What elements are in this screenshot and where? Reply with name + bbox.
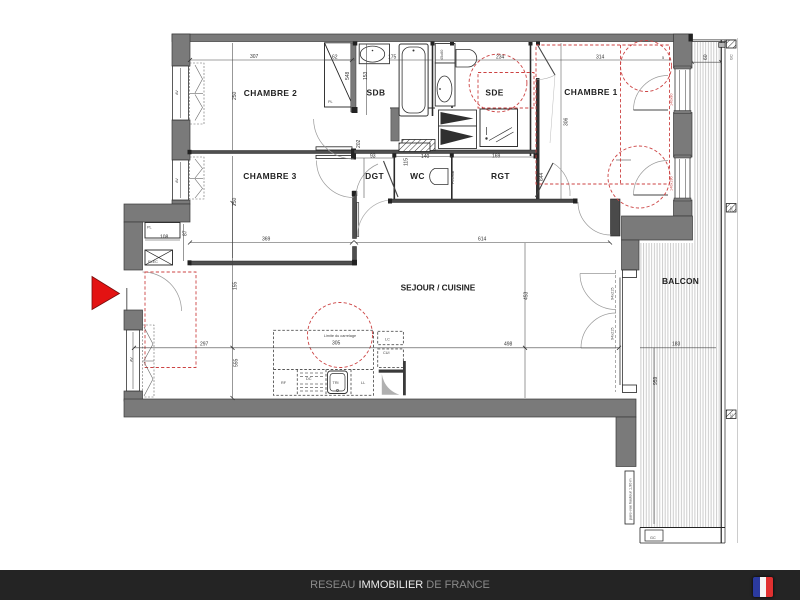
svg-text:LL: LL [361, 381, 365, 385]
svg-text:TRI: TRI [333, 381, 339, 385]
svg-text:CHAMBRE 3: CHAMBRE 3 [243, 171, 296, 181]
svg-text:555: 555 [234, 358, 240, 367]
svg-text:297: 297 [200, 342, 209, 348]
svg-text:45x60: 45x60 [440, 50, 444, 60]
svg-text:108: 108 [160, 235, 169, 241]
svg-text:PL: PL [147, 226, 152, 230]
svg-text:94x215: 94x215 [611, 288, 615, 300]
svg-text:306: 306 [564, 117, 570, 126]
svg-text:CHAMBRE 2: CHAMBRE 2 [244, 88, 297, 98]
svg-text:DC: DC [306, 377, 312, 381]
svg-text:498: 498 [504, 342, 513, 348]
svg-text:RGT: RGT [491, 171, 510, 181]
svg-text:ELEC: ELEC [148, 260, 158, 264]
svg-text:60: 60 [703, 54, 709, 60]
svg-text:140x90: 140x90 [670, 94, 674, 106]
svg-text:153: 153 [363, 71, 369, 80]
svg-text:Limite du carrelage: Limite du carrelage [324, 334, 356, 338]
svg-text:93: 93 [370, 154, 376, 160]
svg-text:BALCON: BALCON [662, 276, 699, 286]
svg-text:PL: PL [328, 100, 333, 104]
svg-text:94x215: 94x215 [611, 328, 615, 340]
svg-text:LC: LC [385, 338, 390, 342]
svg-text:GC: GC [730, 413, 734, 419]
svg-text:959: 959 [653, 376, 659, 385]
svg-text:453: 453 [524, 291, 530, 300]
svg-text:PLOMB: PLOMB [451, 170, 455, 184]
svg-text:5: 5 [662, 56, 664, 60]
svg-text:115: 115 [404, 158, 410, 166]
svg-text:pare-vue hauteur 1,90 m: pare-vue hauteur 1,90 m [629, 478, 633, 520]
svg-text:CHAMBRE 1: CHAMBRE 1 [564, 87, 617, 97]
svg-text:87: 87 [183, 230, 189, 236]
svg-text:234: 234 [496, 55, 505, 61]
svg-text:AV: AV [130, 357, 134, 362]
svg-text:140x190: 140x190 [670, 176, 674, 191]
svg-text:SDE: SDE [485, 87, 503, 97]
svg-text:175: 175 [388, 55, 397, 61]
svg-text:202: 202 [356, 139, 362, 148]
svg-text:GC: GC [730, 206, 734, 212]
svg-text:250: 250 [232, 197, 238, 206]
svg-text:SDB: SDB [367, 87, 386, 97]
svg-text:CUI: CUI [383, 351, 390, 355]
svg-text:SEJOUR / CUISINE: SEJOUR / CUISINE [401, 283, 476, 293]
svg-text:183: 183 [672, 342, 681, 348]
svg-text:314: 314 [596, 55, 605, 61]
svg-text:614: 614 [478, 237, 487, 243]
svg-text:62: 62 [332, 55, 338, 61]
svg-text:DGT: DGT [365, 171, 384, 181]
svg-text:WC: WC [410, 171, 425, 181]
svg-text:AV: AV [175, 178, 179, 183]
svg-text:307: 307 [250, 54, 259, 60]
svg-text:250: 250 [232, 91, 238, 100]
svg-text:GC: GC [650, 536, 656, 540]
svg-text:155: 155 [233, 281, 239, 290]
svg-text:644: 644 [539, 172, 545, 181]
svg-text:GC: GC [730, 54, 734, 60]
svg-text:305: 305 [332, 341, 341, 347]
svg-text:169: 169 [492, 154, 501, 160]
svg-text:548: 548 [345, 71, 351, 80]
svg-text:AV: AV [175, 90, 179, 95]
svg-text:369: 369 [262, 237, 271, 243]
svg-text:140: 140 [421, 154, 430, 160]
svg-text:RF: RF [281, 381, 287, 385]
